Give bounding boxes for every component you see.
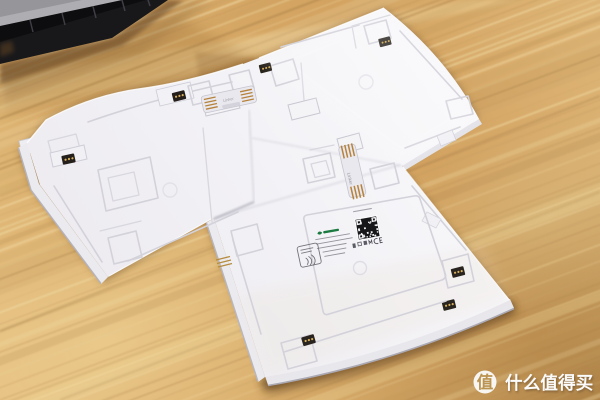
svg-text:值: 值 <box>477 372 494 392</box>
svg-text:什么值得买: 什么值得买 <box>505 373 594 393</box>
